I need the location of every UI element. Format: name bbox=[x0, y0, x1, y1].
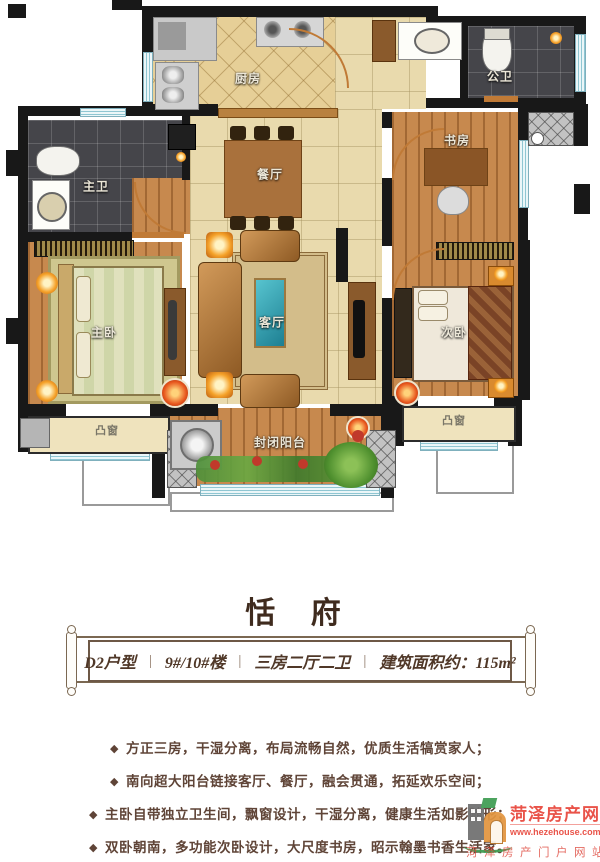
room-label-dining: 餐厅 bbox=[257, 166, 283, 183]
page-title: 恬 府 bbox=[0, 588, 600, 632]
feature-text: 主卧自带独立卫生间，飘窗设计，干湿分离，健康生活如影随形； bbox=[105, 807, 511, 822]
window bbox=[575, 34, 586, 92]
logo-tagline: 菏泽房产门户网站 bbox=[466, 844, 600, 860]
wall-segment bbox=[6, 318, 18, 344]
window bbox=[143, 52, 153, 102]
wall-segment bbox=[8, 4, 26, 18]
shaft-knob bbox=[531, 132, 544, 145]
tv bbox=[353, 300, 365, 358]
round-stool bbox=[160, 378, 190, 408]
flower bbox=[210, 460, 220, 470]
logo-building-window bbox=[477, 817, 481, 821]
wall-segment bbox=[330, 404, 394, 416]
room-label-living: 客厅 bbox=[259, 314, 285, 331]
window bbox=[519, 140, 529, 208]
wall-segment bbox=[382, 178, 392, 246]
flower bbox=[352, 430, 364, 442]
wardrobe bbox=[436, 242, 514, 260]
floorplan: 厨房 公卫 主卫 餐厅 书房 客厅 主卧 次卧 封闭阳台 凸窗 凸窗 bbox=[0, 0, 600, 535]
feature-item: ◆南向超大阳台链接客厅、餐厅，融会贯通，拓延欢乐空间； bbox=[0, 770, 600, 790]
dining-chair bbox=[230, 126, 246, 140]
corner-block bbox=[20, 418, 50, 448]
room-label-public-bath: 公卫 bbox=[487, 68, 513, 85]
pillow bbox=[418, 306, 448, 321]
banner-rod-right bbox=[525, 632, 536, 689]
wall-segment bbox=[336, 228, 348, 282]
toilet-tank bbox=[484, 28, 510, 40]
wall-segment bbox=[382, 298, 392, 408]
logo-site-url: www.hezehouse.com bbox=[510, 824, 600, 837]
banner-separator: | bbox=[149, 653, 152, 670]
sink-bowl bbox=[162, 87, 184, 103]
bar-counter bbox=[218, 108, 338, 118]
range-hood bbox=[168, 124, 196, 150]
room-label-bay-window-right: 凸窗 bbox=[442, 412, 466, 428]
banner-text-box: D2户型 | 9#/10#楼 | 三房二厅二卫 | 建筑面积约：115m² bbox=[88, 640, 512, 682]
shoe-cabinet bbox=[372, 20, 396, 62]
wall-segment bbox=[6, 150, 18, 176]
toilet bbox=[36, 146, 80, 176]
wall-knob bbox=[550, 32, 562, 44]
banner-layout: 三房二厅二卫 bbox=[254, 649, 350, 673]
kitchen-counter-top bbox=[158, 22, 186, 50]
diamond-bullet-icon: ◆ bbox=[110, 743, 119, 755]
pillow bbox=[76, 332, 91, 378]
wall-segment bbox=[518, 240, 530, 400]
wall-segment bbox=[382, 112, 392, 128]
logo-building-window bbox=[471, 817, 475, 821]
bed-blanket bbox=[468, 286, 512, 380]
dining-chair bbox=[254, 126, 270, 140]
bush bbox=[324, 442, 378, 488]
wardrobe bbox=[34, 240, 134, 257]
door-sill bbox=[484, 96, 518, 102]
round-stool bbox=[394, 380, 420, 406]
banner-knob bbox=[67, 687, 76, 696]
flower bbox=[252, 456, 262, 466]
diamond-bullet-icon: ◆ bbox=[89, 809, 98, 821]
dresser-mirror bbox=[168, 300, 177, 360]
logo-roof-icon bbox=[481, 798, 497, 808]
wall-segment bbox=[142, 6, 438, 17]
nightstand-lamp bbox=[494, 267, 508, 281]
room-label-master-bath: 主卫 bbox=[83, 178, 109, 195]
washbasin bbox=[414, 28, 450, 54]
desk-chair bbox=[437, 186, 469, 215]
wall-knob bbox=[176, 152, 186, 162]
feature-text: 方正三房，干湿分离，布局流畅自然，优质生活犒赏家人； bbox=[126, 741, 490, 756]
dining-chair bbox=[278, 216, 294, 230]
site-logo: 菏泽房产网 www.hezehouse.com 菏泽房产门户网站 bbox=[464, 794, 600, 862]
vanity-basin bbox=[37, 192, 67, 222]
room-label-second-bedroom: 次卧 bbox=[441, 324, 467, 341]
window bbox=[80, 108, 126, 117]
banner-area: 建筑面积约：115m² bbox=[379, 649, 515, 673]
floor-lamp bbox=[206, 372, 233, 398]
logo-building-window bbox=[471, 809, 475, 813]
room-label-study: 书房 bbox=[444, 132, 470, 149]
room-label-bay-window-left: 凸窗 bbox=[95, 422, 119, 438]
dining-chair bbox=[230, 216, 246, 230]
armchair bbox=[240, 374, 300, 408]
room-label-master-bedroom: 主卧 bbox=[91, 324, 117, 341]
stove-burner bbox=[264, 21, 281, 38]
feature-item: ◆方正三房，干湿分离，布局流畅自然，优质生活犒赏家人； bbox=[0, 737, 600, 757]
room-label-kitchen: 厨房 bbox=[235, 70, 261, 87]
banner-unit-type: D2户型 bbox=[84, 649, 136, 673]
banner-rod-left bbox=[66, 632, 77, 689]
banner-top-line bbox=[72, 636, 528, 638]
diamond-bullet-icon: ◆ bbox=[110, 776, 119, 788]
pillow bbox=[76, 276, 91, 322]
sofa bbox=[198, 262, 242, 378]
floorplan-poster: 厨房 公卫 主卫 餐厅 书房 客厅 主卧 次卧 封闭阳台 凸窗 凸窗 恬 府 D… bbox=[0, 0, 600, 862]
banner-knob bbox=[526, 687, 535, 696]
wall-segment bbox=[572, 108, 588, 146]
wall-segment bbox=[190, 404, 218, 416]
nightstand-lamp bbox=[36, 380, 58, 402]
dining-chair bbox=[278, 126, 294, 140]
nightstand-lamp bbox=[36, 272, 58, 294]
feature-text: 南向超大阳台链接客厅、餐厅，融会贯通，拓延欢乐空间； bbox=[126, 774, 490, 789]
feature-text: 双卧朝南，多功能次卧设计，大尺度书房，昭示翰墨书香生活家。 bbox=[105, 840, 511, 855]
banner-building-no: 9#/10#楼 bbox=[165, 649, 225, 673]
nightstand-lamp bbox=[494, 379, 508, 393]
armchair bbox=[240, 230, 300, 262]
sink-bowl bbox=[162, 66, 184, 84]
floor-lamp bbox=[206, 232, 233, 258]
banner-knob bbox=[67, 625, 76, 634]
diamond-bullet-icon: ◆ bbox=[89, 842, 98, 854]
wall-segment bbox=[18, 112, 28, 408]
logo-site-name: 菏泽房产网 bbox=[510, 800, 600, 825]
banner-knob bbox=[526, 625, 535, 634]
flower bbox=[298, 459, 308, 469]
room-label-balcony: 封闭阳台 bbox=[254, 434, 306, 451]
wall-segment bbox=[574, 184, 590, 214]
wall-segment bbox=[112, 0, 142, 10]
dining-chair bbox=[254, 216, 270, 230]
banner-separator: | bbox=[238, 653, 241, 670]
logo-building-window bbox=[477, 809, 481, 813]
tv-console bbox=[394, 288, 412, 378]
banner-separator: | bbox=[363, 653, 366, 670]
